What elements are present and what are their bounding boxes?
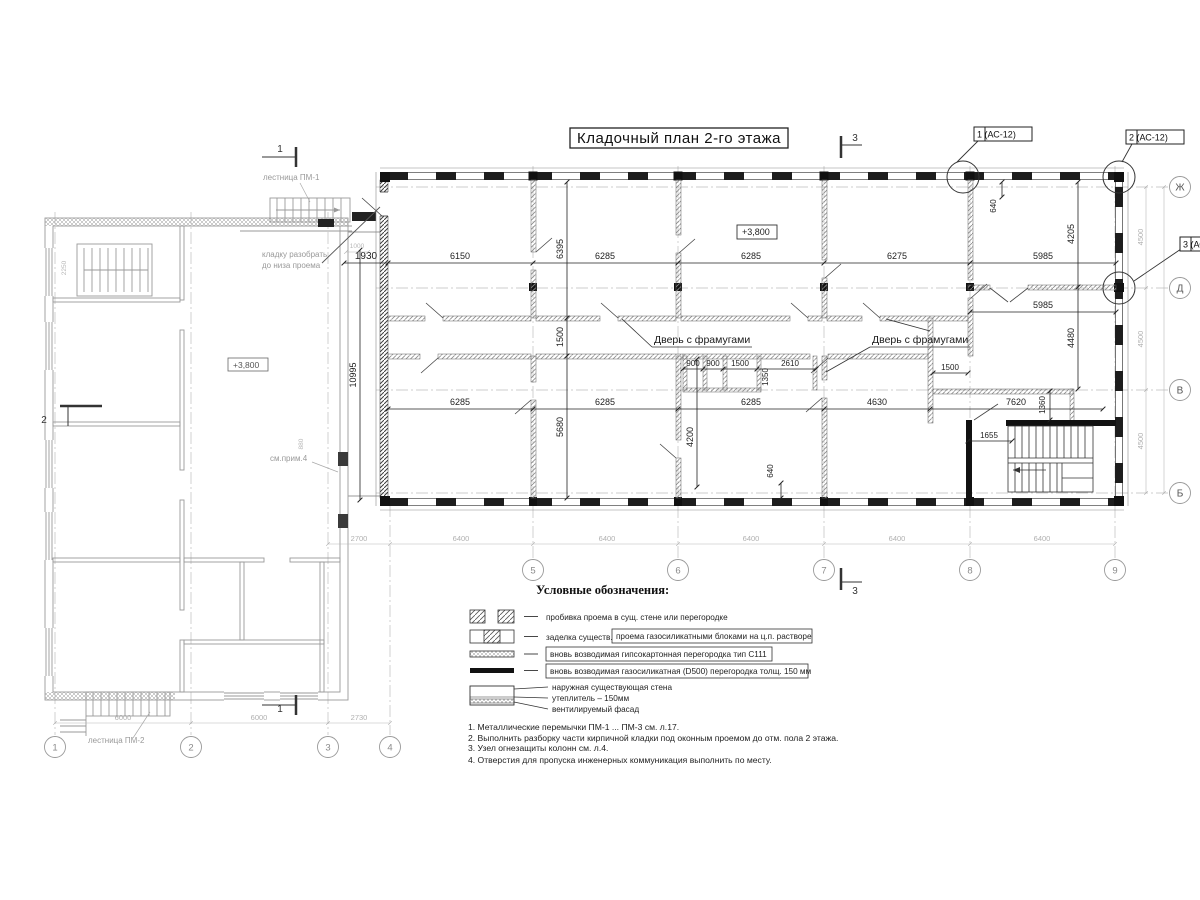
axis-5: 5 bbox=[530, 566, 535, 577]
note-2: 2. Выполнить разборку части кирпичной кл… bbox=[468, 733, 838, 743]
dim-6285b: 6285 bbox=[741, 251, 761, 261]
dim-1350: 1350 bbox=[761, 368, 770, 386]
note-4: 4. Отверстия для пропуска инженерных ком… bbox=[468, 755, 772, 765]
dim-1930: 1930 bbox=[355, 251, 378, 262]
section-1-bottom: 1 bbox=[277, 704, 283, 715]
gdim-6400b: 6400 bbox=[599, 534, 616, 543]
dim-6285c: 6285 bbox=[450, 397, 470, 407]
door-label-1: Дверь с фрамугами bbox=[654, 334, 750, 346]
drawing-canvas: 1930 6150 6285 6285 6275 5985 5985 6285 … bbox=[0, 0, 1200, 900]
top-wall bbox=[382, 172, 1114, 180]
gdim-6400a: 6400 bbox=[453, 534, 470, 543]
legend-row1-text: пробивка проема в сущ. стене или перегор… bbox=[546, 613, 728, 622]
dim-5680: 5680 bbox=[555, 417, 565, 437]
title-block: Кладочный план 2-го этажа bbox=[570, 128, 788, 148]
callout-1: 1 (АС-12) bbox=[977, 130, 1016, 140]
axis-2: 2 bbox=[188, 743, 193, 754]
dim-6150: 6150 bbox=[450, 251, 470, 261]
section-3-top: 3 bbox=[852, 133, 858, 144]
see-note4-label: см.прим.4 bbox=[270, 454, 308, 463]
legend-row5-text-b: утеплитель – 150мм bbox=[552, 694, 629, 703]
columns bbox=[380, 172, 1124, 507]
dim-1500r: 1500 bbox=[941, 363, 959, 372]
bottom-wall bbox=[382, 498, 1114, 506]
dimensions-gray: 2700 6400 6400 6400 6400 6400 6000 6000 … bbox=[55, 187, 1164, 723]
legend-row2-text-b: проема газосиликатными блоками на ц.п. р… bbox=[616, 632, 812, 641]
legend-row5-text-c: вентилируемый фасад bbox=[552, 705, 639, 714]
legend-row2-text-a: заделка существ. bbox=[546, 633, 613, 642]
gdim-4500b: 4500 bbox=[1136, 331, 1145, 348]
dim-6285e: 6285 bbox=[741, 397, 761, 407]
dim-640b: 640 bbox=[766, 464, 775, 478]
axis-9: 9 bbox=[1112, 566, 1117, 577]
door-label-2: Дверь с фрамугами bbox=[872, 334, 968, 346]
notes: 1. Металлические перемычки ПМ-1 ... ПМ-3… bbox=[468, 722, 838, 765]
gdim-2700: 2700 bbox=[351, 534, 368, 543]
dim-2610: 2610 bbox=[781, 359, 799, 368]
left-windows bbox=[44, 248, 54, 676]
dim-4200: 4200 bbox=[685, 427, 695, 447]
legend-row5-text-a: наружная существующая стена bbox=[552, 683, 672, 692]
internal-stair bbox=[77, 244, 152, 296]
dim-6395: 6395 bbox=[555, 239, 565, 259]
callout-3: 3 (АС-12) bbox=[1183, 240, 1200, 250]
dim-640t: 640 bbox=[989, 199, 998, 213]
demolish-label-1: кладку разобрать bbox=[262, 250, 327, 259]
gdim-2250: 2250 bbox=[61, 260, 68, 275]
gdim-6400c: 6400 bbox=[743, 534, 760, 543]
dim-4480: 4480 bbox=[1066, 328, 1076, 348]
dim-1360: 1360 bbox=[1038, 396, 1047, 414]
dim-4630: 4630 bbox=[867, 397, 887, 407]
dim-1655: 1655 bbox=[980, 431, 998, 440]
dim-7620: 7620 bbox=[1006, 397, 1026, 407]
gdim-880: 880 bbox=[298, 438, 305, 449]
gdim-4500c: 4500 bbox=[1136, 433, 1145, 450]
axis-v: В bbox=[1177, 386, 1184, 397]
note-3: 3. Узел огнезащиты колонн см. л.4. bbox=[468, 743, 608, 753]
dim-6275: 6275 bbox=[887, 251, 907, 261]
elevation-main: +3,800 bbox=[742, 227, 770, 237]
gdim-6400d: 6400 bbox=[889, 534, 906, 543]
section-3-bottom: 3 bbox=[852, 586, 858, 597]
dim-6285a: 6285 bbox=[595, 251, 615, 261]
dim-5985a: 5985 bbox=[1033, 251, 1053, 261]
plan-labels: +3,800 +3,800 Дверь с фрамугами Дверь с … bbox=[88, 173, 970, 745]
left-wall bbox=[380, 180, 388, 498]
gdim-2730: 2730 bbox=[351, 713, 368, 722]
stair-pm2-label: лестница ПМ-2 bbox=[88, 736, 145, 745]
dim-1500v: 1500 bbox=[555, 327, 565, 347]
dim-5985b: 5985 bbox=[1033, 300, 1053, 310]
axis-3: 3 bbox=[325, 743, 330, 754]
legend-row3-text: вновь возводимая гипсокартонная перегоро… bbox=[550, 650, 767, 659]
dim-900a: 900 bbox=[686, 359, 700, 368]
legend-heading: Условные обозначения: bbox=[536, 583, 669, 597]
dim-4205: 4205 bbox=[1066, 224, 1076, 244]
callout-2: 2 (АС-12) bbox=[1129, 133, 1168, 143]
gdim-1000: 1000 bbox=[350, 243, 365, 250]
axis-zh: Ж bbox=[1175, 183, 1185, 194]
elevation-old: +3,800 bbox=[233, 360, 260, 370]
demolish-label-2: до низа проема bbox=[262, 261, 321, 270]
gdim-6400e: 6400 bbox=[1034, 534, 1051, 543]
stair-pm1-label: лестница ПМ-1 bbox=[263, 173, 320, 182]
dim-1500s: 1500 bbox=[731, 359, 749, 368]
section-2: 2 bbox=[41, 415, 47, 426]
note-1: 1. Металлические перемычки ПМ-1 ... ПМ-3… bbox=[468, 722, 679, 732]
dim-900b: 900 bbox=[706, 359, 720, 368]
dim-6285d: 6285 bbox=[595, 397, 615, 407]
gdim-6000a: 6000 bbox=[115, 713, 132, 722]
legend-row4-text: вновь возводимая газосиликатная (D500) п… bbox=[550, 667, 812, 676]
axis-7: 7 bbox=[821, 566, 826, 577]
gdim-6000b: 6000 bbox=[251, 713, 268, 722]
door-leaves bbox=[421, 238, 1028, 458]
page-title: Кладочный план 2-го этажа bbox=[577, 130, 781, 147]
axis-d: Д bbox=[1177, 284, 1184, 295]
gdim-4500a: 4500 bbox=[1136, 229, 1145, 246]
main-stair bbox=[1008, 426, 1093, 492]
stair-pm1 bbox=[240, 198, 352, 231]
axis-1: 1 bbox=[52, 743, 57, 754]
dim-10995: 10995 bbox=[348, 362, 358, 387]
axis-b: Б bbox=[1177, 489, 1184, 500]
axis-4: 4 bbox=[387, 743, 392, 754]
existing-building bbox=[44, 198, 380, 736]
section-1-top: 1 bbox=[277, 144, 283, 155]
right-wall bbox=[1115, 182, 1123, 496]
axis-8: 8 bbox=[967, 566, 972, 577]
bottom-windows bbox=[224, 691, 318, 701]
axis-6: 6 bbox=[675, 566, 680, 577]
callouts: 1 (АС-12) 2 (АС-12) 3 (АС-12) bbox=[947, 127, 1200, 304]
legend: Условные обозначения: пробивка проема в … bbox=[470, 583, 812, 714]
